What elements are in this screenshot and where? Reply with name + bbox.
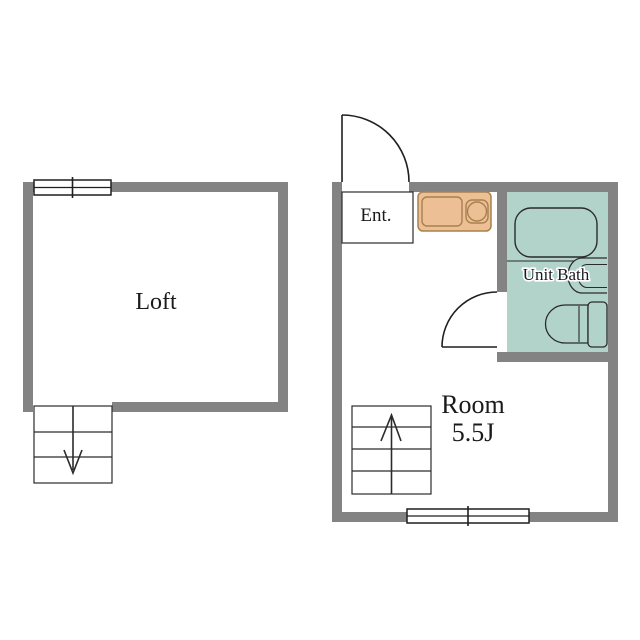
wall-left [332,182,342,522]
loft-unit: Loft [23,177,288,483]
kitchen-counter-top [422,197,462,226]
floor-plan: Loft Ent. [0,0,640,640]
room-window [407,506,529,526]
kitchen-counter [418,192,491,231]
loft-wall-left [23,182,33,412]
wall-top [409,182,618,192]
room-stairs-up [352,406,431,494]
unit-bath-wall-left [497,192,507,292]
entrance-label: Ent. [360,205,391,226]
unit-bath-wall-bottom [497,352,618,362]
unit-bath-door [442,292,497,347]
unit-bath-door-arc [442,292,497,347]
loft-wall-right [278,182,288,412]
kitchen-sink-bowl [468,202,487,221]
loft-window [34,177,111,198]
loft-wall-bottom [112,402,288,412]
entrance-door-arc [342,115,409,182]
toilet-tank [588,302,607,347]
loft-label: Loft [135,289,177,315]
room-size-label: 5.5J [452,418,495,447]
room-label: Room [441,390,505,419]
entrance-door [342,115,409,182]
floor-plan-canvas: Loft Ent. [0,0,640,640]
unit-bath-label: Unit Bath [523,265,590,284]
loft-stairs-down [34,406,112,483]
main-floor-unit: Ent. [332,115,618,526]
entrance-area: Ent. [342,192,413,243]
